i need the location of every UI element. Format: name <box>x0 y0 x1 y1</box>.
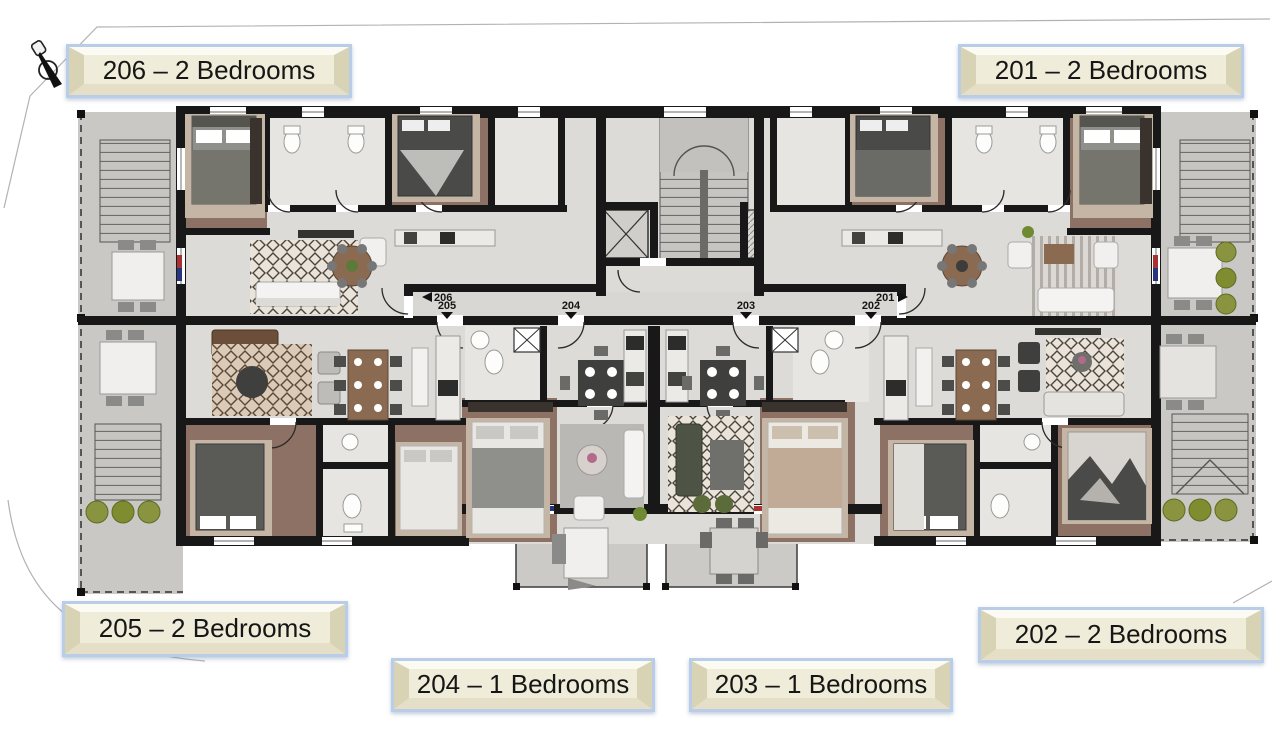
sofa <box>256 282 340 306</box>
closet <box>1140 118 1152 204</box>
bed <box>190 440 272 536</box>
armchair <box>574 496 604 520</box>
plaque-face: 201 – 2 Bedrooms <box>961 47 1241 95</box>
corridor-unit-204-marker: 204 <box>562 300 581 312</box>
bed <box>466 418 550 538</box>
sofa <box>676 424 702 496</box>
kitchen-island <box>412 348 428 406</box>
armchair <box>1008 242 1032 268</box>
armchair <box>1018 370 1040 392</box>
sofa <box>624 430 644 498</box>
plaque-label: 205 – 2 Bedrooms <box>99 615 311 641</box>
shower-box <box>514 328 540 352</box>
plaque-label: 206 – 2 Bedrooms <box>103 57 315 83</box>
closet <box>468 402 553 412</box>
armchair <box>1018 342 1040 364</box>
tv-console <box>298 230 354 238</box>
coffee-table <box>236 366 268 398</box>
bed <box>396 442 462 536</box>
unit-201-plaque[interactable]: 201 – 2 Bedrooms <box>958 44 1244 98</box>
flowers <box>587 453 597 463</box>
pouf <box>715 495 733 513</box>
plaque-label: 201 – 2 Bedrooms <box>995 57 1207 83</box>
kitchen <box>395 230 495 246</box>
floor-plan-page: 206 205 204 203 202 201 206 – 2 Bedrooms… <box>0 0 1280 733</box>
elevator-icon <box>604 210 648 258</box>
unit-205-plaque[interactable]: 205 – 2 Bedrooms <box>62 601 348 657</box>
plant <box>1022 226 1034 238</box>
unit-203-plaque[interactable]: 203 – 1 Bedrooms <box>689 658 953 712</box>
kitchen <box>436 336 460 420</box>
unit-202-plaque[interactable]: 202 – 2 Bedrooms <box>978 607 1264 663</box>
pouf <box>693 495 711 513</box>
plaque-face: 202 – 2 Bedrooms <box>981 610 1261 660</box>
plaque-face: 205 – 2 Bedrooms <box>65 604 345 654</box>
bed <box>888 440 974 536</box>
coffee-table <box>710 440 744 490</box>
unit-206-plaque[interactable]: 206 – 2 Bedrooms <box>66 44 352 98</box>
kitchen-island <box>916 348 932 406</box>
corridor-unit-203-marker: 203 <box>737 300 755 312</box>
kitchen <box>842 230 942 246</box>
kitchen <box>666 330 688 402</box>
plaque-label: 204 – 1 Bedrooms <box>417 671 629 697</box>
drafting-pen-icon <box>31 40 62 88</box>
plaque-label: 203 – 1 Bedrooms <box>715 671 927 697</box>
bed <box>1062 428 1152 524</box>
closet <box>250 118 262 204</box>
sofa <box>1044 392 1124 416</box>
plaque-face: 203 – 1 Bedrooms <box>692 661 950 709</box>
tv-console <box>1035 328 1101 335</box>
corridor-unit-201-marker: 201 <box>876 292 894 304</box>
bed <box>762 418 848 538</box>
closet <box>762 402 847 412</box>
plaque-label: 202 – 2 Bedrooms <box>1015 621 1227 647</box>
outdoor-dining-set <box>700 518 768 584</box>
plaque-face: 204 – 1 Bedrooms <box>394 661 652 709</box>
dining-set <box>942 350 1010 420</box>
kitchen <box>884 336 908 420</box>
bed <box>392 114 480 202</box>
dining-set <box>334 350 402 420</box>
plaque-face: 206 – 2 Bedrooms <box>69 47 349 95</box>
shower-box <box>772 328 798 352</box>
stairwell <box>660 118 748 260</box>
bed <box>850 114 938 202</box>
flowers <box>1078 356 1086 364</box>
corridor-unit-205-marker: 205 <box>438 300 456 312</box>
unit-204-plaque[interactable]: 204 – 1 Bedrooms <box>391 658 655 712</box>
armchair <box>1094 242 1118 268</box>
plant <box>633 507 647 521</box>
kitchen <box>624 330 646 402</box>
